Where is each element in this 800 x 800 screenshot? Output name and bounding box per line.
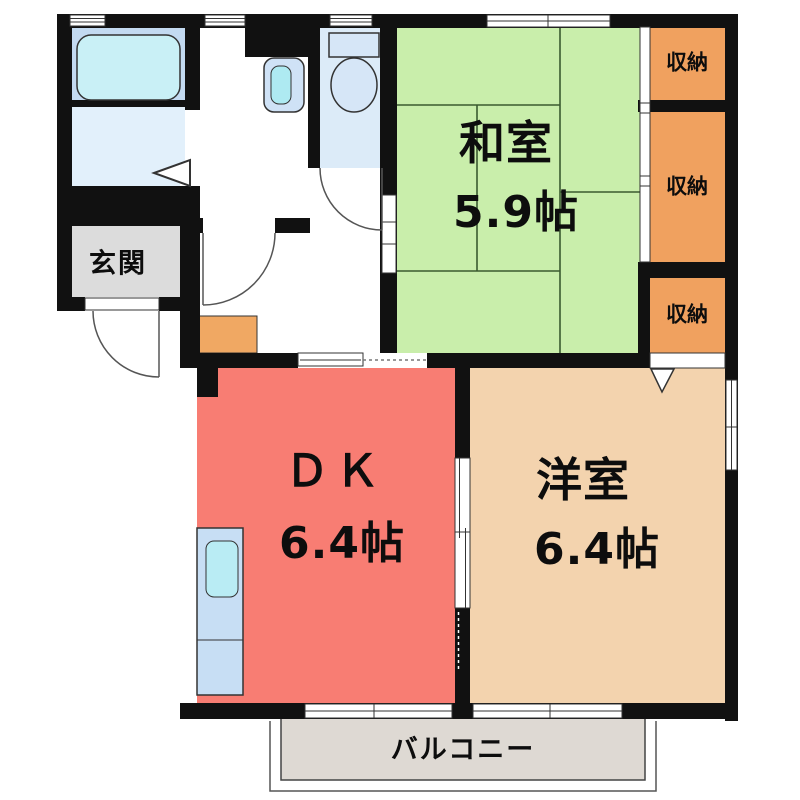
entrance-opening — [85, 298, 159, 310]
washitsu-window-icon — [487, 15, 610, 27]
toilet-icon — [329, 33, 379, 112]
floor-plan: 玄関 和室 5.9帖 ＤＫ 6.4帖 洋室 6.4帖 収納 収納 収納 バルコニ… — [0, 0, 800, 800]
entrance-door-icon — [93, 311, 159, 377]
shoe-cabinet-icon — [198, 316, 257, 353]
closet-fusuma-icon — [640, 27, 650, 262]
yoshitsu-balcony-window-icon — [473, 704, 622, 718]
washbasin-icon — [264, 58, 304, 112]
dk-sliding-door-icon — [298, 353, 427, 366]
washitsu-size: 5.9帖 — [453, 191, 579, 235]
entrance-label: 玄関 — [89, 251, 147, 278]
closet2-label: 収納 — [666, 177, 708, 198]
dk-label: ＤＫ — [285, 450, 385, 494]
kitchen-sink-icon — [197, 528, 243, 695]
washitsu-label: 和室 — [459, 120, 553, 166]
washitsu-fusuma-icon — [382, 195, 396, 273]
yoshitsu-side-window-icon — [726, 380, 737, 470]
bathroom-window-icon — [70, 15, 105, 26]
balcony-label: バルコニー — [391, 737, 535, 764]
closet3-label: 収納 — [666, 305, 708, 326]
yoshitsu-label: 洋室 — [536, 457, 630, 503]
washroom-opening — [203, 218, 275, 233]
closet1-label: 収納 — [666, 53, 708, 74]
bathtub-icon — [77, 35, 180, 100]
yoshitsu-size: 6.4帖 — [534, 528, 660, 572]
washroom-window-icon — [205, 15, 245, 26]
dk-size: 6.4帖 — [279, 522, 405, 566]
floor-plan-canvas — [0, 0, 800, 800]
toilet-window-icon — [330, 15, 372, 26]
dk-balcony-window-icon — [305, 704, 452, 718]
